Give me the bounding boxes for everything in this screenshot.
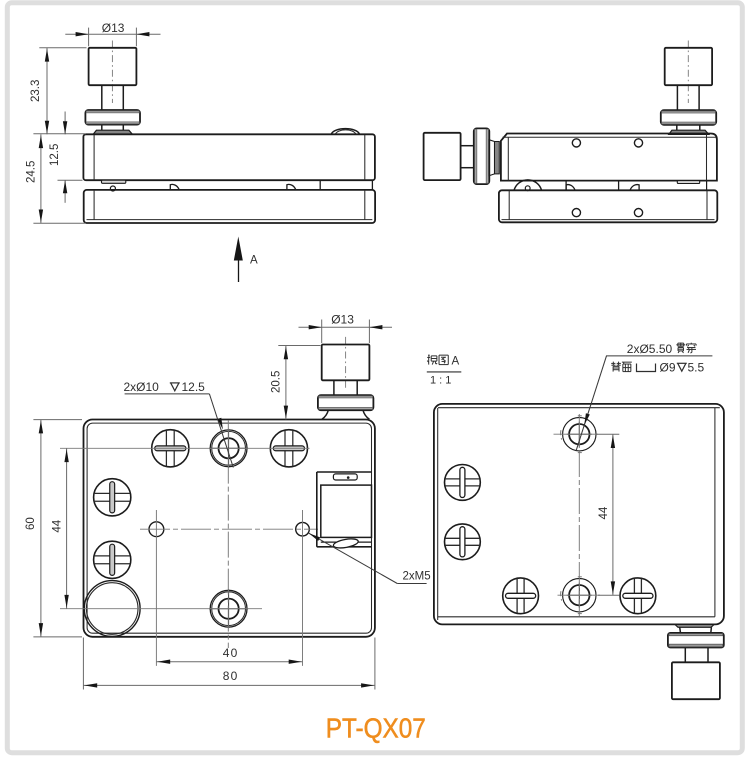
svg-text:1 : 1: 1 : 1 — [430, 375, 451, 387]
svg-text:PT-QX07: PT-QX07 — [326, 712, 426, 743]
svg-text:23.3: 23.3 — [30, 80, 42, 102]
svg-text:2xM5: 2xM5 — [403, 571, 431, 583]
svg-text:A: A — [452, 356, 460, 368]
svg-text:24.5: 24.5 — [25, 161, 37, 183]
svg-text:12.5: 12.5 — [49, 144, 61, 166]
svg-text:Ø9: Ø9 — [660, 361, 676, 375]
svg-text:44: 44 — [51, 519, 63, 532]
svg-text:2xØ10: 2xØ10 — [124, 380, 160, 394]
svg-text:40: 40 — [223, 646, 239, 660]
svg-text:5.5: 5.5 — [688, 361, 705, 375]
svg-text:80: 80 — [223, 669, 239, 683]
svg-text:44: 44 — [598, 506, 610, 519]
svg-text:60: 60 — [25, 517, 37, 530]
svg-text:A: A — [250, 254, 258, 266]
svg-text:Ø13: Ø13 — [331, 313, 354, 327]
svg-text:Ø13: Ø13 — [102, 21, 125, 35]
svg-text:2xØ5.50: 2xØ5.50 — [627, 342, 673, 356]
svg-text:12.5: 12.5 — [182, 380, 206, 394]
svg-text:20.5: 20.5 — [271, 371, 283, 393]
